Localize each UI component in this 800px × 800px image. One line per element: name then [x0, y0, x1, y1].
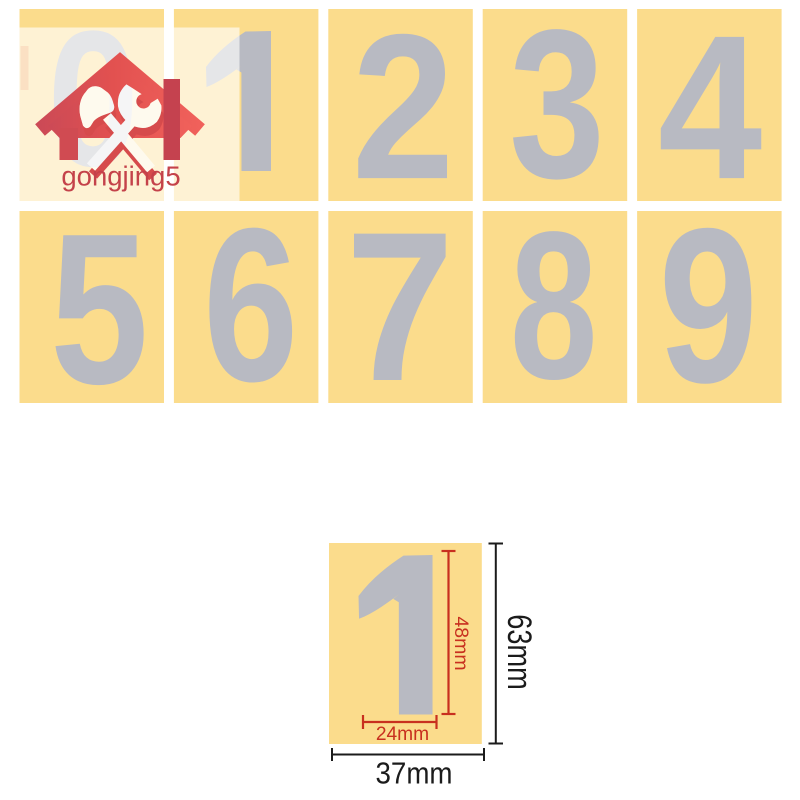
svg-text:63mm: 63mm: [500, 614, 539, 690]
svg-text:37mm: 37mm: [375, 758, 452, 791]
svg-text:gongjing5: gongjing5: [61, 161, 180, 192]
svg-text:24mm: 24mm: [376, 724, 429, 745]
svg-text:48mm: 48mm: [450, 616, 472, 670]
svg-text:8: 8: [510, 189, 598, 423]
svg-text:6: 6: [203, 182, 298, 427]
svg-text:5: 5: [50, 189, 149, 429]
svg-text:7: 7: [346, 188, 455, 426]
svg-text:9: 9: [659, 182, 758, 429]
